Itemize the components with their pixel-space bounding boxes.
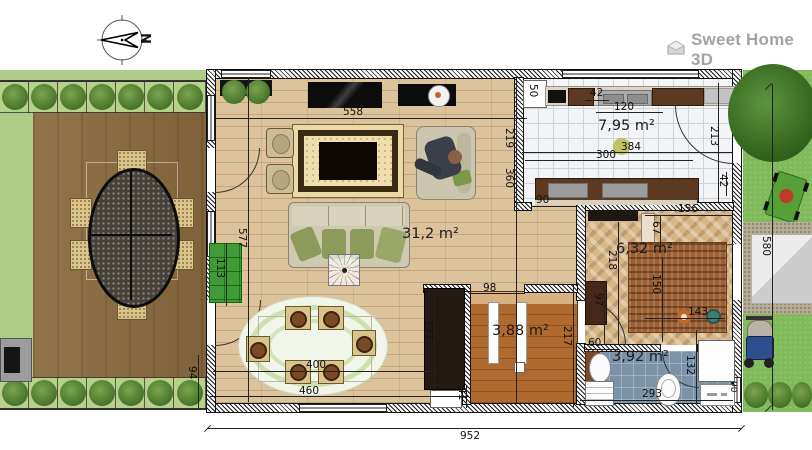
dimension-bath-sink[interactable]: 60 xyxy=(588,338,601,349)
person-head xyxy=(448,150,462,164)
hedge-cell xyxy=(87,82,116,112)
app-logo-icon xyxy=(666,39,686,62)
garden-door-gap xyxy=(207,300,215,345)
light-center xyxy=(342,268,347,273)
garden-fence-bottom xyxy=(0,408,208,410)
dimension-kitchen-door-side[interactable]: 213 xyxy=(708,126,719,146)
hedge-bush[interactable] xyxy=(118,84,144,110)
wall-stairs-top-b xyxy=(525,285,577,292)
kitchen-cabinet[interactable] xyxy=(652,88,704,106)
place-setting xyxy=(356,336,373,353)
dimension-dining-width-outer[interactable]: 460 xyxy=(299,386,319,397)
dimension-terrace-gap[interactable]: 94 xyxy=(186,366,197,379)
place-setting xyxy=(323,311,340,328)
dimension-line xyxy=(226,243,227,306)
hedge-bush[interactable] xyxy=(147,380,173,406)
hedge-cell xyxy=(145,378,174,408)
hedge-bush[interactable] xyxy=(31,380,57,406)
dimension-line xyxy=(516,78,517,404)
stroller-wheel xyxy=(744,358,754,368)
dimension-line xyxy=(645,215,733,216)
room-label-cabinet[interactable]: 6,32 m² xyxy=(616,241,673,257)
sofa-cushion xyxy=(289,226,322,263)
dimension-bath-width[interactable]: 293 xyxy=(642,389,662,400)
hedge-bush[interactable] xyxy=(60,84,86,110)
dimension-line xyxy=(248,78,249,402)
dimension-line xyxy=(696,330,697,404)
dimension-fridge-width[interactable]: 50 xyxy=(527,84,538,97)
dimension-cabinet-height[interactable]: 218 xyxy=(606,250,617,270)
garden-grill[interactable] xyxy=(0,338,32,382)
hedge-cell xyxy=(87,378,116,408)
wall-rooms-left-lower xyxy=(577,344,585,404)
hedge-bush[interactable] xyxy=(2,380,28,406)
dimension-line-total xyxy=(207,428,741,429)
dimension-kitchen-counter-len[interactable]: 300 xyxy=(596,150,616,161)
grill-opening xyxy=(4,347,20,373)
sofa-backrest xyxy=(292,206,405,226)
large-tree[interactable] xyxy=(728,64,812,162)
room-label-living[interactable]: 31,2 m² xyxy=(402,226,459,242)
living-window-left-1[interactable] xyxy=(208,96,214,140)
hedge-bush[interactable] xyxy=(118,380,144,406)
dimension-kitchen-width[interactable]: 384 xyxy=(621,142,641,153)
compass-north-label: N xyxy=(139,33,150,44)
hedge-cell xyxy=(58,378,87,408)
hedge-cell xyxy=(29,378,58,408)
bathroom-sink[interactable] xyxy=(589,353,611,383)
kitchen-island[interactable] xyxy=(535,178,699,202)
kitchen-window[interactable] xyxy=(563,71,698,77)
cabinet-door-gap xyxy=(733,244,741,300)
dimension-kitchen-side-upper[interactable]: 219 xyxy=(503,128,514,148)
hedge-bush[interactable] xyxy=(60,380,86,406)
living-window-top[interactable] xyxy=(222,71,270,77)
dining-chair[interactable] xyxy=(318,306,344,330)
washing-machine[interactable] xyxy=(585,381,614,406)
dimension-line xyxy=(434,292,435,391)
dimension-garden-side[interactable]: 580 xyxy=(760,236,771,256)
dimension-line xyxy=(585,100,609,101)
dimension-bath-window[interactable]: 90 xyxy=(727,381,738,392)
hedge-bush[interactable] xyxy=(2,84,28,110)
dimension-line xyxy=(470,293,525,294)
stool-teal[interactable] xyxy=(706,309,721,324)
hedge-bush[interactable] xyxy=(147,84,173,110)
living-rug[interactable] xyxy=(292,124,404,198)
dimension-tick xyxy=(738,425,745,432)
dimension-kitchen-passage[interactable]: 90 xyxy=(536,195,549,206)
place-setting xyxy=(290,311,307,328)
island-sink xyxy=(602,183,648,198)
app-logo-text: Sweet Home 3D xyxy=(691,30,812,70)
garden-bush[interactable] xyxy=(744,382,768,408)
hedge-bush[interactable] xyxy=(177,84,203,110)
tractor-seat xyxy=(777,187,795,205)
tv-cabinet[interactable] xyxy=(308,82,382,108)
hedge-bush[interactable] xyxy=(31,84,57,110)
potted-plant[interactable] xyxy=(222,80,246,104)
room-label-stairs[interactable]: 3,88 m² xyxy=(492,323,549,339)
dimension-line xyxy=(645,318,725,319)
dining-chair[interactable] xyxy=(285,306,311,330)
dimension-stairs-opening[interactable]: 98 xyxy=(483,283,496,294)
armchair[interactable] xyxy=(266,128,294,158)
plate-center xyxy=(435,92,441,98)
hedge-cell xyxy=(29,82,58,112)
dimension-cabinet-top-width[interactable]: 156 xyxy=(678,204,698,215)
dimension-line xyxy=(198,355,199,408)
hedge-cell xyxy=(145,82,174,112)
dimension-living-top[interactable]: 558 xyxy=(343,107,363,118)
garden-bush[interactable] xyxy=(792,382,812,408)
living-window-bottom[interactable] xyxy=(300,405,386,411)
hedge-cell xyxy=(174,82,205,112)
dining-chair[interactable] xyxy=(352,330,376,356)
potted-plant[interactable] xyxy=(246,80,270,104)
wall-bottom xyxy=(207,404,741,412)
place-setting xyxy=(290,364,307,381)
dimension-living-side-lower[interactable]: 360 xyxy=(503,168,514,188)
dimension-line xyxy=(580,400,733,401)
ceiling-light-icon[interactable] xyxy=(328,254,360,286)
shelf-mark xyxy=(707,393,717,396)
dimension-cabinet-jamb[interactable]: 67 xyxy=(650,221,661,234)
dimension-line xyxy=(213,371,437,372)
room-label-kitchen[interactable]: 7,95 m² xyxy=(598,118,655,134)
hedge-bush[interactable] xyxy=(89,84,115,110)
dimension-stairs-height[interactable]: 217 xyxy=(561,326,572,346)
wall-shelf-black[interactable] xyxy=(588,210,638,221)
hedge-cell xyxy=(116,378,145,408)
hedge-bush[interactable] xyxy=(177,380,203,406)
shelf-mark xyxy=(721,393,727,396)
dimension-sink-width[interactable]: 120 xyxy=(614,102,634,113)
dimension-line xyxy=(662,258,663,342)
terrace-door-gap xyxy=(207,148,215,192)
dimension-dining-width[interactable]: 400 xyxy=(306,360,326,371)
dimension-line xyxy=(604,290,605,344)
dimension-line xyxy=(618,222,619,344)
parasol[interactable] xyxy=(88,168,180,308)
hedge-cell xyxy=(58,82,87,112)
dining-chair[interactable] xyxy=(246,336,270,362)
rug-center xyxy=(319,142,377,180)
tractor-wheel xyxy=(772,172,779,182)
armchair-seat xyxy=(272,170,290,190)
dimension-line-garden xyxy=(772,84,773,410)
dimension-small-cabinet[interactable]: 41 xyxy=(456,387,467,400)
room-label-bathroom[interactable]: 3,92 m² xyxy=(612,349,669,365)
cooktop[interactable] xyxy=(548,90,566,103)
hedge-cell xyxy=(174,378,205,408)
dimension-house-width[interactable]: 952 xyxy=(460,431,480,442)
dimension-counter-seg[interactable]: 42 xyxy=(590,88,603,99)
dimension-living-left-height[interactable]: 577 xyxy=(236,228,247,248)
hedge-bush[interactable] xyxy=(89,380,115,406)
dimension-line xyxy=(573,285,574,407)
wall-kitchen-bottom-a xyxy=(515,203,531,210)
dimension-line xyxy=(531,206,577,207)
dimension-alcove-height[interactable]: 177 xyxy=(422,320,433,340)
dimension-cabinet-door-swing[interactable]: 150 xyxy=(650,274,661,294)
parasol-rib xyxy=(130,170,132,300)
hedge-cell xyxy=(0,82,29,112)
dimension-line xyxy=(215,118,527,119)
wall-rooms-left-upper xyxy=(577,203,585,300)
dimension-bath-height[interactable]: 132 xyxy=(684,355,695,375)
stroller-body xyxy=(746,336,774,360)
armchair[interactable] xyxy=(266,164,294,194)
dimension-line xyxy=(585,349,619,350)
armchair-seat xyxy=(272,134,290,154)
dimension-cabinet-bottom[interactable]: 143 xyxy=(688,307,708,318)
floor-plan-canvas: N Sweet Home 3D xyxy=(0,0,812,450)
decor-plate[interactable] xyxy=(428,85,450,107)
dimension-kitchen-door-jamb[interactable]: 42 xyxy=(717,174,728,187)
hedge-cell xyxy=(0,378,29,408)
hedge-cell xyxy=(116,82,145,112)
dimension-green-cabinet[interactable]: 113 xyxy=(214,258,225,278)
island-ledge xyxy=(535,200,697,205)
toilet-bowl xyxy=(661,379,676,398)
island-sink xyxy=(548,183,588,198)
shower[interactable] xyxy=(698,340,735,382)
place-setting xyxy=(250,342,267,359)
app-logo: Sweet Home 3D xyxy=(666,30,812,70)
dimension-cabinet-door[interactable]: 97 xyxy=(592,293,603,306)
